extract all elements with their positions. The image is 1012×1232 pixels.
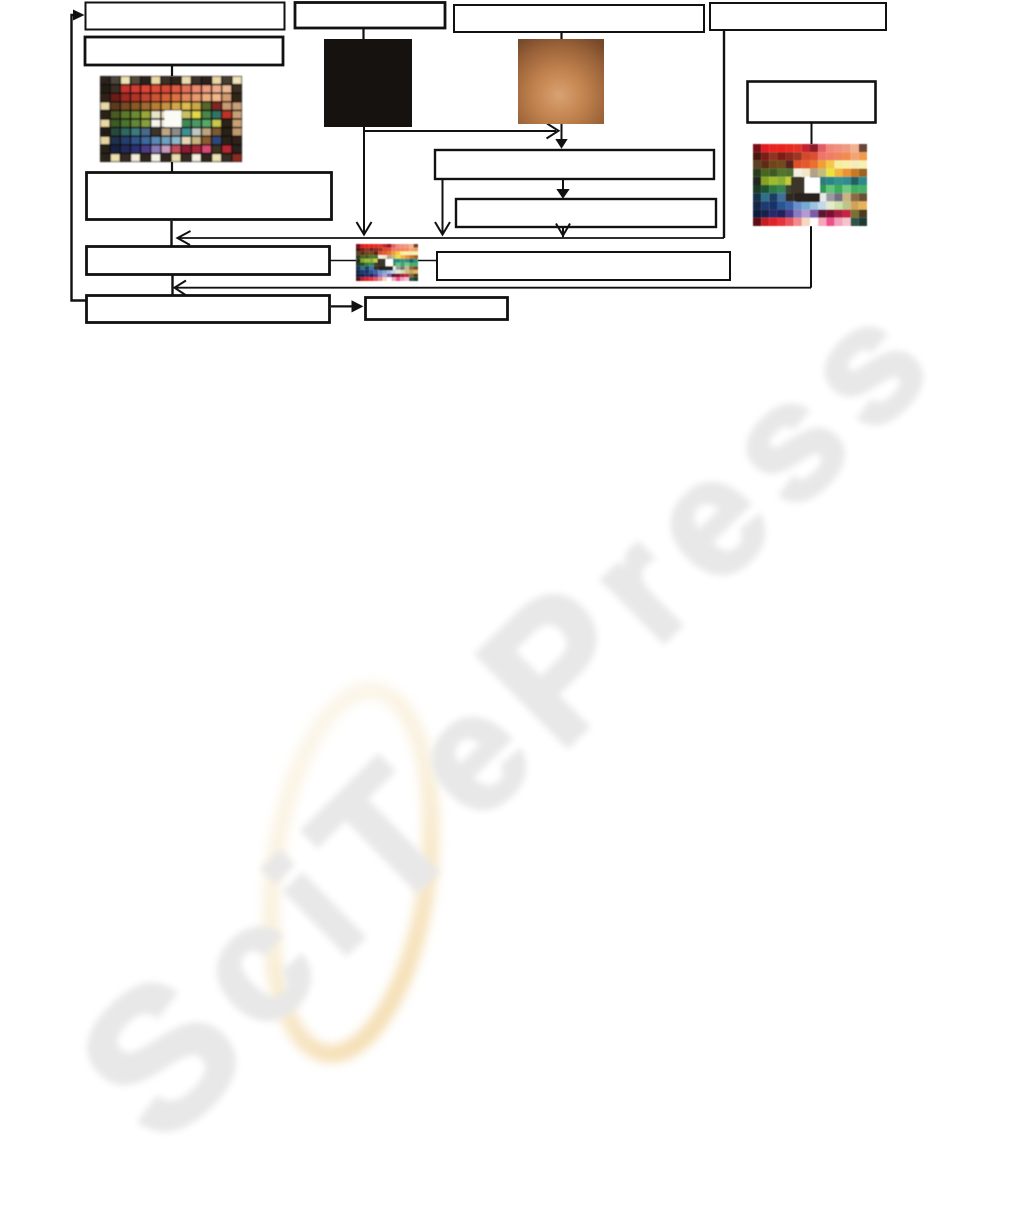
svg-text:SciTePress: SciTePress xyxy=(37,242,986,1180)
